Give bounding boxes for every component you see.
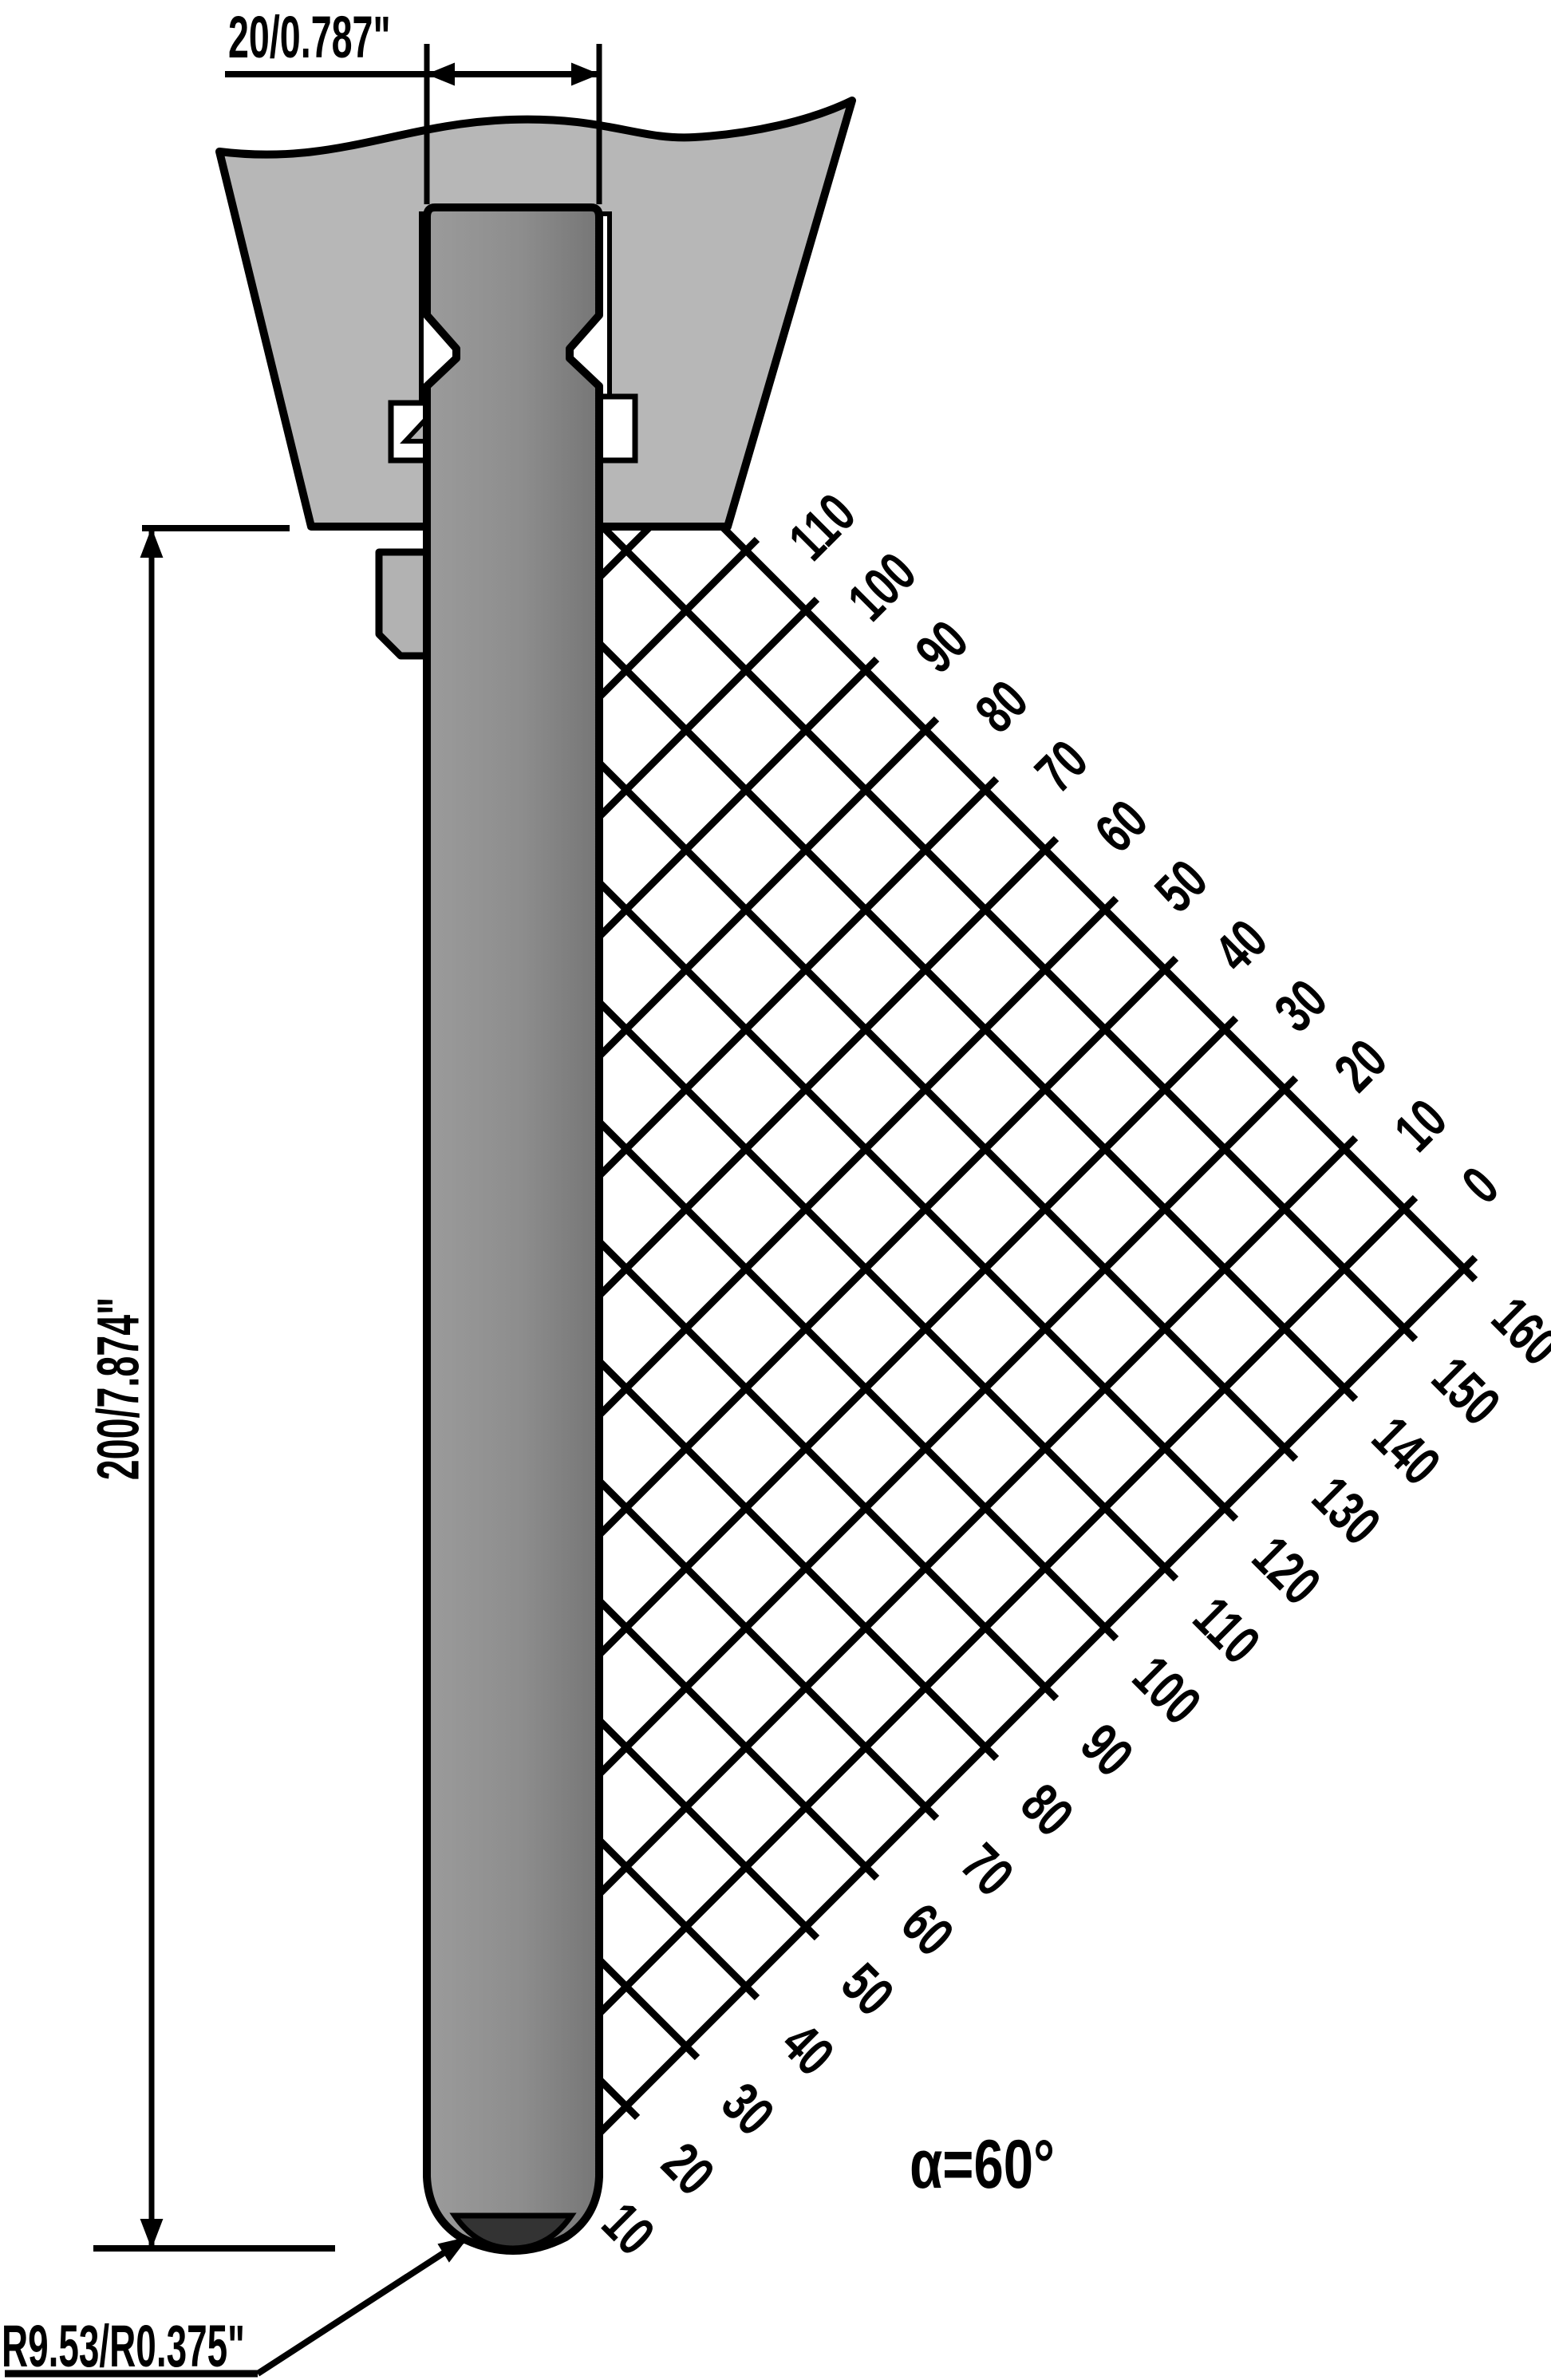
grid-line bbox=[598, 539, 757, 698]
grid-right-label-150: 150 bbox=[1420, 1345, 1512, 1437]
grid-right-label-130: 130 bbox=[1300, 1465, 1392, 1557]
grid-line bbox=[598, 1839, 757, 1998]
grid-top-label-20: 20 bbox=[1323, 1028, 1399, 1103]
arrow-down-icon bbox=[141, 2220, 162, 2247]
grid-right-label-20: 20 bbox=[650, 2131, 726, 2207]
grid-right-label-30: 30 bbox=[710, 2071, 786, 2147]
grid-top-label-10: 10 bbox=[1383, 1087, 1458, 1163]
grid-right-label-120: 120 bbox=[1241, 1525, 1332, 1616]
grid-line bbox=[598, 1138, 1356, 1895]
height-dimension-label: 200/7.874" bbox=[85, 1243, 152, 1534]
grid-top-label-80: 80 bbox=[964, 669, 1040, 744]
grid-right-label-110: 110 bbox=[1182, 1585, 1272, 1675]
grid-right-label-100: 100 bbox=[1121, 1644, 1213, 1736]
grid-top-label-110: 110 bbox=[777, 482, 867, 572]
grid-right-label-70: 70 bbox=[949, 1832, 1025, 1908]
width-dimension-label: 20/0.787" bbox=[228, 3, 391, 71]
grid-line bbox=[598, 1600, 877, 1878]
grid-right-label-90: 90 bbox=[1069, 1712, 1145, 1788]
grid-top-label-40: 40 bbox=[1203, 908, 1279, 984]
grid-top-label-60: 60 bbox=[1083, 788, 1159, 864]
deflection-grid bbox=[558, 403, 1475, 2174]
arrow-up-icon bbox=[141, 530, 162, 557]
arrow-right-icon bbox=[572, 64, 598, 85]
grid-right-label-60: 60 bbox=[890, 1892, 965, 1968]
grid-top-scale: 1101009080706050403020100 bbox=[777, 482, 1510, 1215]
grid-right-scale: 160150140130120110100908070605040302010 bbox=[590, 1285, 1551, 2267]
arrow-left-icon bbox=[428, 64, 454, 85]
grid-right-label-160: 160 bbox=[1480, 1285, 1551, 1377]
grid-top-label-30: 30 bbox=[1263, 968, 1339, 1044]
punch-body bbox=[427, 207, 599, 2251]
grid-top-label-70: 70 bbox=[1024, 728, 1099, 804]
angle-dimension-label: α=60° bbox=[858, 2125, 1107, 2204]
grid-top-label-50: 50 bbox=[1143, 848, 1219, 924]
technical-drawing-canvas: 1101009080706050403020100 16015014013012… bbox=[0, 0, 1551, 2380]
grid-right-label-10: 10 bbox=[590, 2191, 666, 2267]
grid-line bbox=[598, 958, 1176, 1536]
grid-line bbox=[598, 642, 1356, 1399]
safety-tab bbox=[379, 552, 427, 656]
leader-arrow-icon bbox=[439, 2238, 467, 2261]
grid-line bbox=[598, 659, 877, 937]
punch-drawing-svg: 1101009080706050403020100 16015014013012… bbox=[0, 0, 1551, 2380]
grid-right-label-80: 80 bbox=[1009, 1772, 1085, 1848]
radius-dimension-label: R9.53/R0.375" bbox=[2, 2312, 245, 2380]
grid-top-label-90: 90 bbox=[904, 609, 980, 685]
grid-top-label-0: 0 bbox=[1450, 1155, 1510, 1215]
grid-line bbox=[598, 1959, 697, 2058]
grid-right-label-40: 40 bbox=[770, 2011, 846, 2087]
grid-right-label-50: 50 bbox=[830, 1952, 906, 2027]
grid-right-label-140: 140 bbox=[1360, 1405, 1452, 1497]
grid-line bbox=[558, 1257, 1475, 2174]
clamp-window-right bbox=[599, 397, 635, 460]
grid-top-label-100: 100 bbox=[836, 541, 928, 633]
